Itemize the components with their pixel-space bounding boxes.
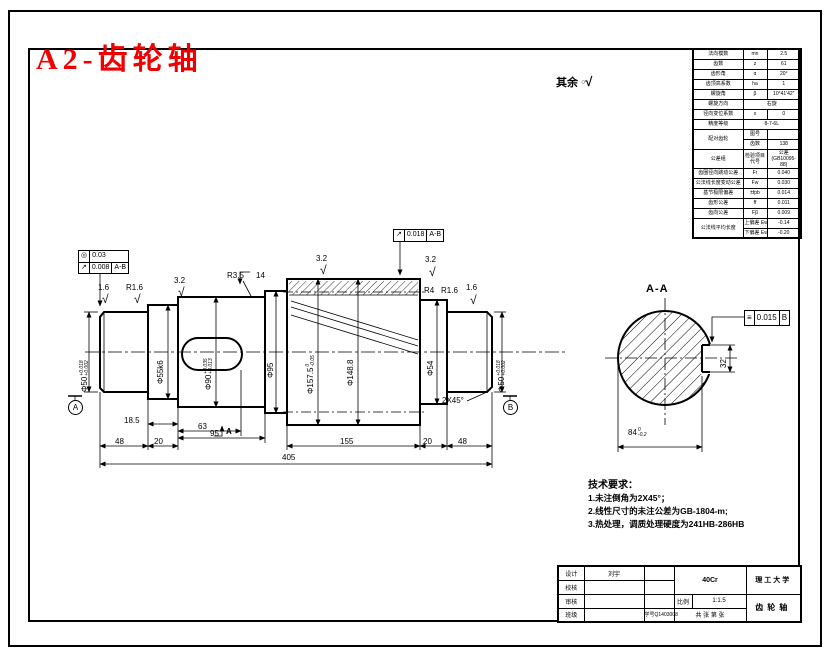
surface-finish-note: 其余 ○√: [556, 74, 592, 90]
param-val: 右旋: [743, 99, 801, 109]
datum-b-badge: B: [503, 400, 518, 415]
param-val: 8-7-6L: [743, 119, 801, 129]
title-block: 设计 刘宇 40Cr 理工大学 校核 审核 比例 1:1.5 齿轮轴 班级 学号…: [557, 565, 802, 623]
param-val: 0.011: [767, 198, 801, 208]
roughness-icon: √: [470, 294, 477, 306]
technical-requirements: 技术要求： 1.未注倒角为2X45°； 2.线性尺寸的未注公差为GB-1804-…: [588, 476, 823, 531]
param-label: 配对齿轮: [693, 129, 743, 149]
param-val: 1: [767, 79, 801, 89]
empty-cell: [584, 594, 644, 608]
param-sublabel: 下偏差 Ewi: [743, 228, 767, 238]
fcf-row: ↗0.008A-B: [79, 262, 128, 273]
fillet-radius-label: R4: [424, 286, 434, 295]
param-label: 齿向公差: [693, 208, 743, 218]
organization-name: 理工大学: [746, 566, 801, 594]
param-label: 齿形角: [693, 69, 743, 79]
material-spec: 40Cr: [674, 566, 746, 594]
param-label: 径向变位系数: [693, 109, 743, 119]
drawing-title: A2-齿轮轴: [36, 34, 203, 78]
scale-value: 1:1.5: [692, 594, 746, 608]
datum-reference: A-B: [111, 263, 128, 273]
tech-req-item: 3.热处理，调质处理硬度为241HB-286HB: [588, 518, 823, 531]
param-sublabel: 上偏差 Ews: [743, 218, 767, 228]
dim-phi90: Φ90+0.035+0.013: [204, 358, 214, 390]
roughness-icon: √: [178, 286, 185, 298]
fillet-radius-label: R1.6: [441, 286, 458, 295]
roughness-icon: √: [320, 264, 327, 276]
dim-phi95: Φ95: [266, 363, 275, 378]
param-label: 螺旋方向: [693, 99, 743, 109]
dim-84: 840-0.2: [628, 428, 647, 438]
dim-keyway-width: 32: [719, 359, 728, 368]
chamfer-label: 2X45°: [442, 396, 464, 405]
empty-cell: [644, 594, 674, 608]
param-label: 公法线长度变动公差: [693, 178, 743, 188]
param-val: 10°41′42″: [767, 89, 801, 99]
check-item-header: 检验项目代号: [743, 149, 767, 168]
dim-18-5: 18.5: [124, 416, 140, 425]
dim-95: 95: [210, 429, 219, 438]
param-sym: ha: [743, 79, 767, 89]
param-label: 齿形公差: [693, 198, 743, 208]
dim-155: 155: [340, 437, 353, 446]
param-label: 基节极限偏差: [693, 188, 743, 198]
dim-overall-length: 405: [282, 453, 295, 462]
runout-symbol-icon: ↗: [394, 230, 404, 241]
scale-label: 比例: [674, 594, 692, 608]
dim-phi50-right: Φ50+0.018+0.002: [497, 360, 507, 392]
param-sublabel: 齿数: [743, 139, 767, 149]
roughness-icon: √: [134, 293, 141, 305]
param-val: 0.040: [767, 168, 801, 178]
geom-tolerance-frame-section: ≡0.015B: [744, 310, 790, 326]
tolerance-group-header: 公差组: [693, 149, 743, 168]
param-val: 0.014: [767, 188, 801, 198]
design-label: 设计: [558, 566, 584, 580]
designer-name: 刘宇: [584, 566, 644, 580]
param-label: 齿数: [693, 59, 743, 69]
tolerance-symbol-icon: ◎: [79, 251, 89, 262]
tech-req-item: 1.未注倒角为2X45°；: [588, 492, 823, 505]
fillet-radius-label: R3.5: [227, 271, 244, 280]
roughness-value: 1.6: [98, 283, 109, 292]
param-sym: β: [743, 89, 767, 99]
geom-tolerance-frame-left: ◎0.03 ↗0.008A-B: [78, 250, 129, 274]
student-id: 学号Q1403008: [644, 608, 674, 622]
dim-48-left: 48: [115, 437, 124, 446]
param-sublabel: 图号: [743, 129, 767, 139]
param-sym: Fr: [743, 168, 767, 178]
dim-20-left: 20: [154, 437, 163, 446]
param-val: -0.20: [767, 228, 801, 238]
dim-20-right: 20: [423, 437, 432, 446]
param-val: 0.030: [767, 178, 801, 188]
param-val: [767, 129, 801, 139]
param-label: 公法线平均长度: [693, 218, 743, 238]
section-letter: A: [226, 427, 232, 436]
param-val: -0.14: [767, 218, 801, 228]
fcf-row: ≡0.015B: [745, 311, 789, 325]
tech-req-heading: 技术要求：: [588, 476, 823, 491]
param-label: 精度等级: [693, 119, 743, 129]
param-label: 螺旋角: [693, 89, 743, 99]
tolerance-value: 0.008: [89, 263, 112, 273]
datum-a-badge: A: [68, 400, 83, 415]
param-sym: x: [743, 109, 767, 119]
param-val: 0.009: [767, 208, 801, 218]
section-view-title: A-A: [646, 283, 669, 295]
datum-reference: A-B: [426, 230, 443, 241]
param-val: 2.5: [767, 49, 801, 59]
empty-cell: [584, 608, 644, 622]
empty-cell: [584, 580, 644, 594]
param-sym: α: [743, 69, 767, 79]
dim-phi54: Φ54: [426, 361, 435, 376]
class-label: 班级: [558, 608, 584, 622]
rest-label: 其余: [556, 77, 578, 89]
param-val: 20°: [767, 69, 801, 79]
roughness-icon: ○√: [581, 77, 592, 89]
dim-phi50-left: Φ50+0.018+0.002: [80, 360, 90, 392]
dim-phi148: Φ148.8: [346, 360, 355, 386]
tolerance-value: 0.03: [89, 251, 108, 262]
param-val: 0: [767, 109, 801, 119]
sheet-count-note: 共 张 第 张: [674, 608, 746, 622]
param-sym: Fw: [743, 178, 767, 188]
param-sym: Fβ: [743, 208, 767, 218]
dim-48-right: 48: [458, 437, 467, 446]
roughness-value: 3.2: [425, 255, 436, 264]
dim-phi55: Φ55k6: [156, 360, 165, 384]
gear-tooth-hatch: [289, 281, 418, 295]
runout-symbol-icon: ↗: [79, 263, 89, 273]
param-sym: mn: [743, 49, 767, 59]
check-label: 校核: [558, 580, 584, 594]
roughness-value: 3.2: [316, 254, 327, 263]
part-name: 齿轮轴: [746, 594, 801, 622]
ring-width-label: 14: [256, 271, 265, 280]
fcf-row: ↗0.018A-B: [394, 230, 443, 241]
dim-phi157: Φ157.50-0.05: [306, 355, 316, 394]
fillet-radius-label: R1.6: [126, 283, 143, 292]
empty-cell: [644, 566, 674, 580]
roughness-icon: √: [429, 266, 436, 278]
param-label: 齿圈径向跳动公差: [693, 168, 743, 178]
tolerance-value: 0.015: [754, 311, 779, 325]
param-label: 齿顶高系数: [693, 79, 743, 89]
tolerance-header: 公差 (GB10095-88): [767, 149, 801, 168]
param-sym: z: [743, 59, 767, 69]
roughness-value: 1.6: [466, 283, 477, 292]
leaders-and-marks: [68, 241, 517, 436]
symmetry-symbol-icon: ≡: [745, 311, 754, 325]
tolerance-value: 0.018: [404, 230, 427, 241]
param-sym: ff: [743, 198, 767, 208]
geom-tolerance-frame-gear: ↗0.018A-B: [393, 229, 444, 242]
roughness-icon: √: [102, 293, 109, 305]
param-sym: ±fpb: [743, 188, 767, 198]
audit-label: 审核: [558, 594, 584, 608]
empty-cell: [644, 580, 674, 594]
section-aa-view: [605, 298, 744, 452]
dim-63: 63: [198, 422, 207, 431]
fcf-row: ◎0.03: [79, 251, 128, 262]
param-val: 138: [767, 139, 801, 149]
linear-dimension-lines: [100, 370, 492, 468]
datum-reference: B: [779, 311, 789, 325]
param-val: 61: [767, 59, 801, 69]
roughness-value: 3.2: [174, 276, 185, 285]
gear-parameter-table: 法向模数mn2.5 齿数z61 齿形角α20° 齿顶高系数ha1 螺旋角β10°…: [692, 48, 802, 239]
tech-req-item: 2.线性尺寸的未注公差为GB-1804-m;: [588, 505, 823, 518]
param-label: 法向模数: [693, 49, 743, 59]
drawing-page: A2-齿轮轴 其余 ○√ 法向模数mn2.5 齿数z61 齿形角α20° 齿顶高…: [0, 0, 830, 654]
